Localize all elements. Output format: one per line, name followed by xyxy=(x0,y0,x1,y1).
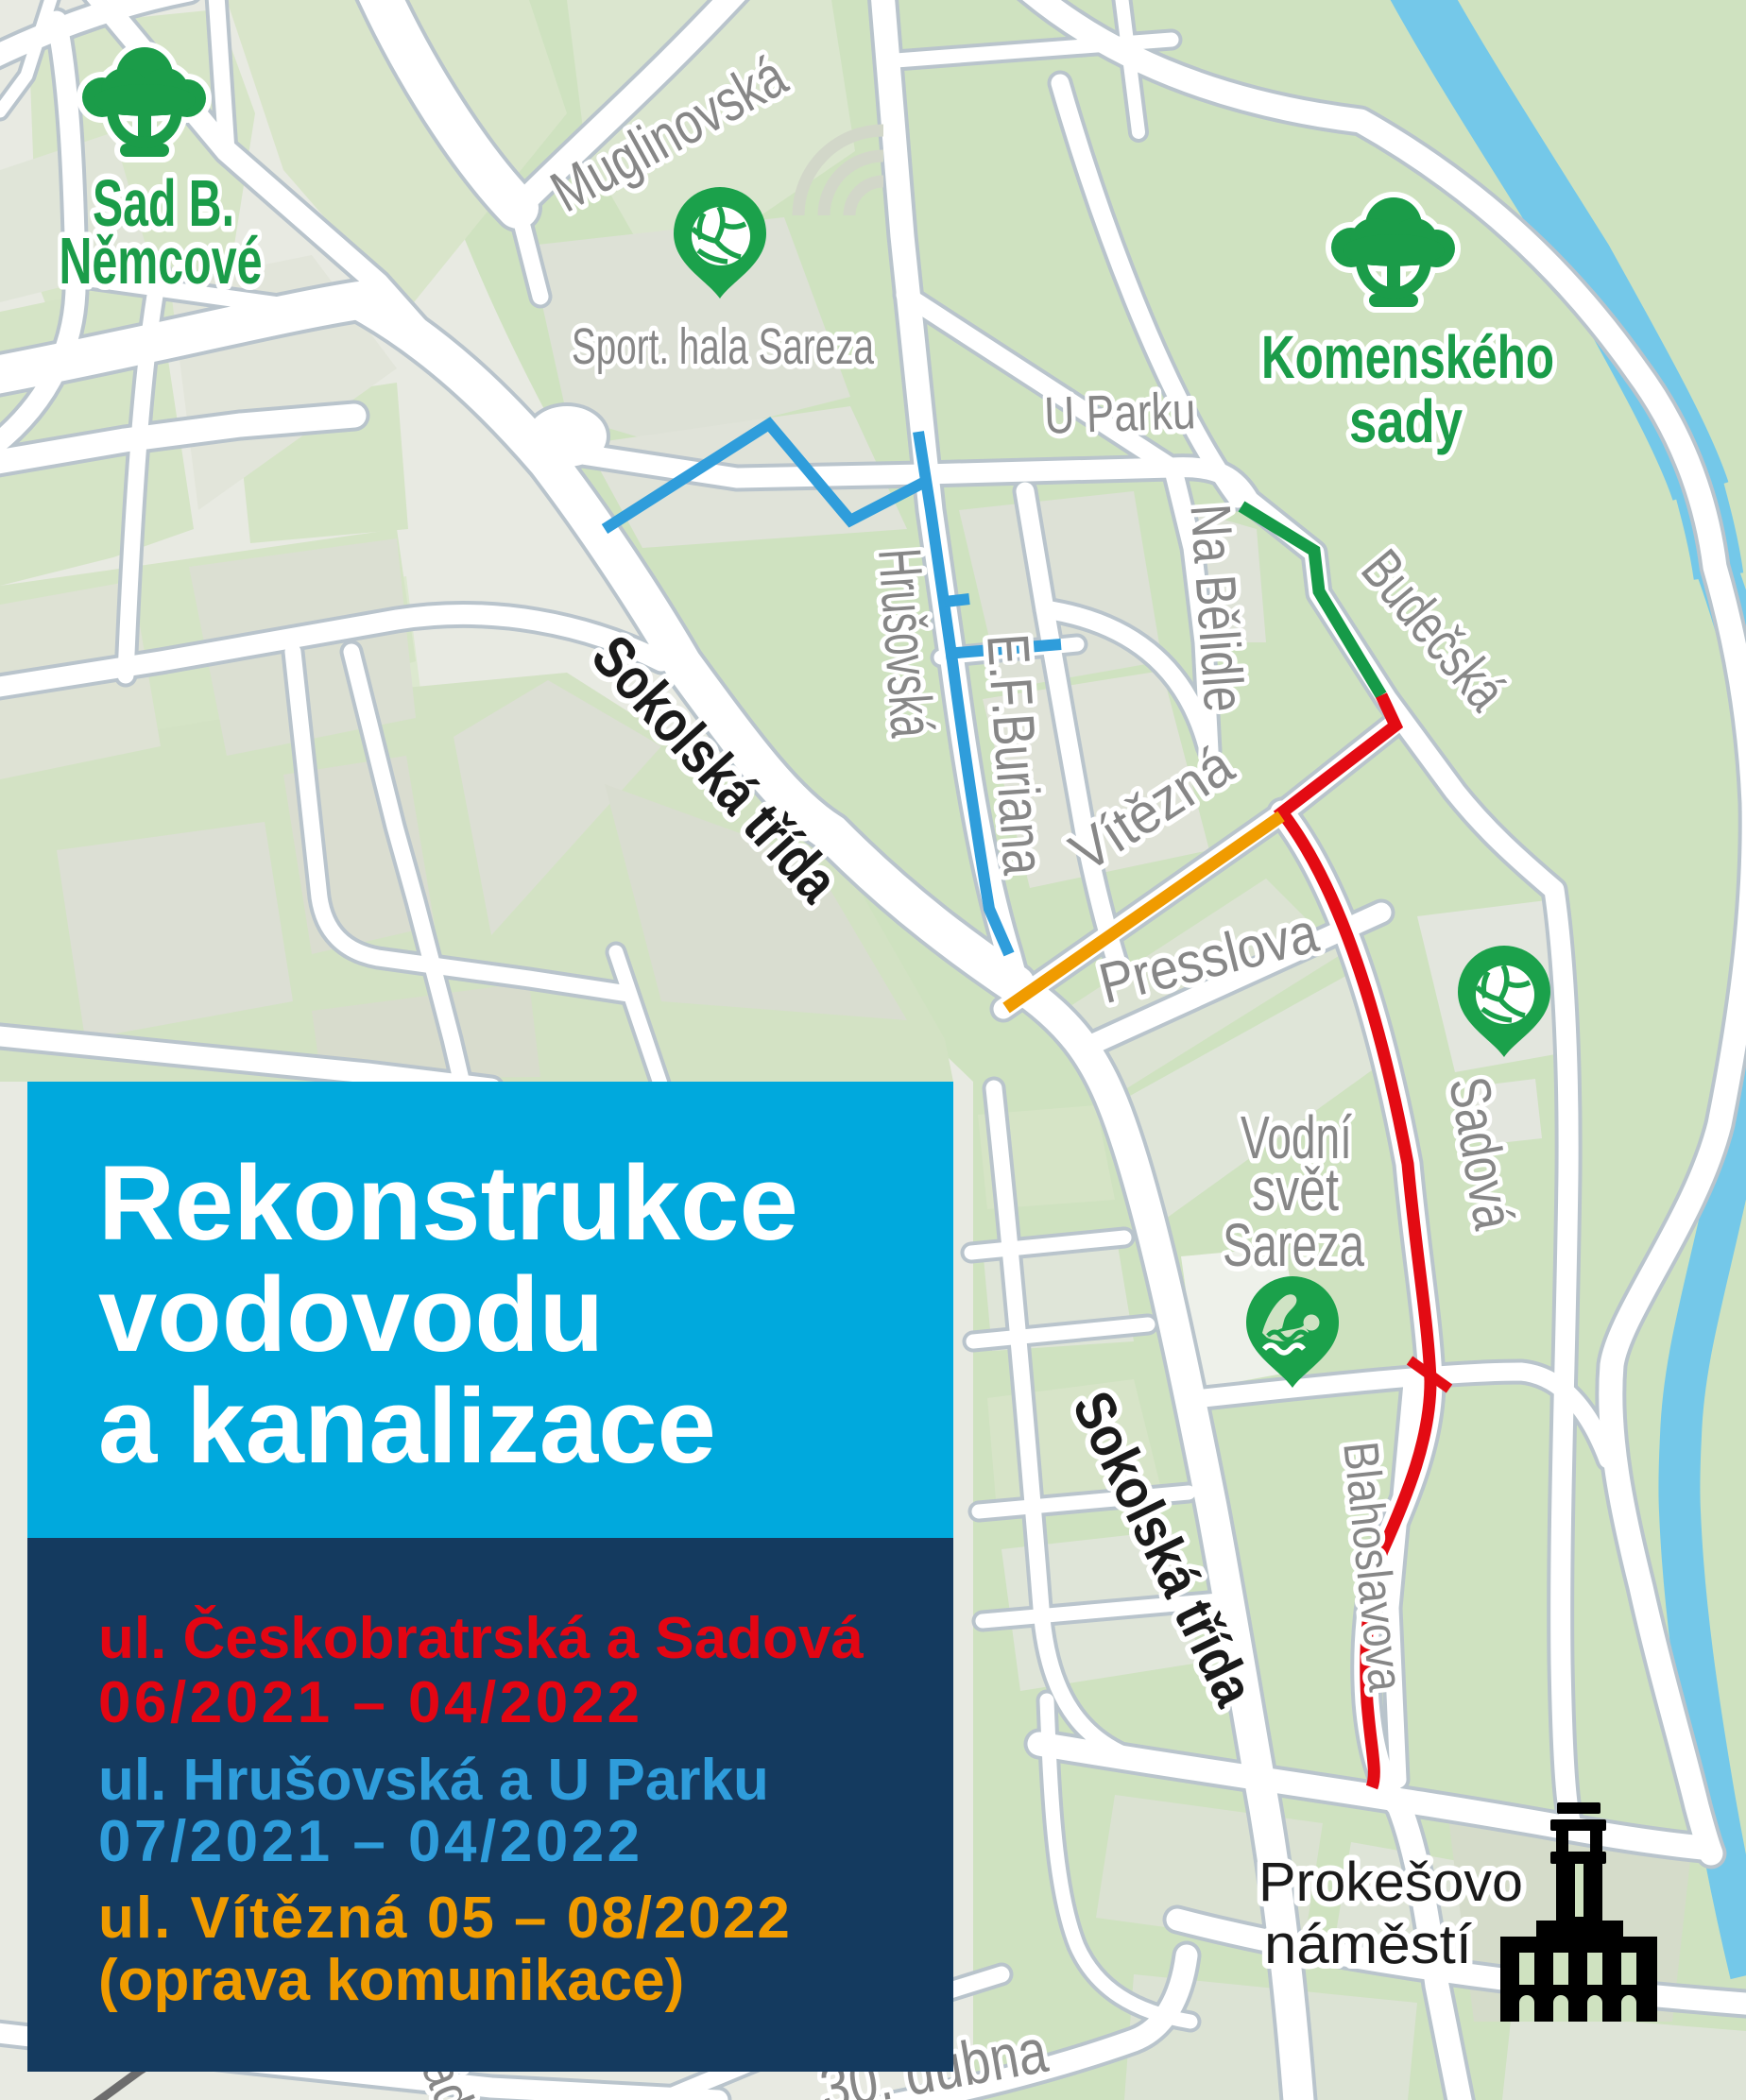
svg-text:Sareza: Sareza xyxy=(1223,1211,1364,1279)
svg-text:a kanalizace: a kanalizace xyxy=(98,1367,716,1485)
svg-text:U Parku: U Parku xyxy=(1043,381,1196,445)
svg-text:(oprava komunikace): (oprava komunikace) xyxy=(98,1948,684,2013)
svg-text:07/2021 – 04/2022: 07/2021 – 04/2022 xyxy=(98,1809,643,1874)
svg-text:Sport. hala Sareza: Sport. hala Sareza xyxy=(572,318,875,375)
svg-text:Prokešovo: Prokešovo xyxy=(1258,1852,1523,1913)
svg-text:ul. Hrušovská a U Parku: ul. Hrušovská a U Parku xyxy=(98,1748,769,1813)
svg-text:Komenského: Komenského xyxy=(1261,323,1554,391)
svg-text:Němcové: Němcové xyxy=(60,224,263,298)
svg-text:ul. Vítězná 05 – 08/2022: ul. Vítězná 05 – 08/2022 xyxy=(98,1886,792,1951)
svg-text:sady: sady xyxy=(1349,387,1463,455)
svg-text:ul. Českobratrská a Sadová: ul. Českobratrská a Sadová xyxy=(98,1606,864,1671)
svg-text:Hrušovská: Hrušovská xyxy=(865,546,947,740)
svg-text:vodovodu: vodovodu xyxy=(98,1255,604,1374)
svg-text:06/2021 – 04/2022: 06/2021 – 04/2022 xyxy=(98,1670,643,1735)
svg-text:Rekonstrukce: Rekonstrukce xyxy=(98,1144,798,1262)
svg-text:náměstí: náměstí xyxy=(1264,1914,1472,1975)
